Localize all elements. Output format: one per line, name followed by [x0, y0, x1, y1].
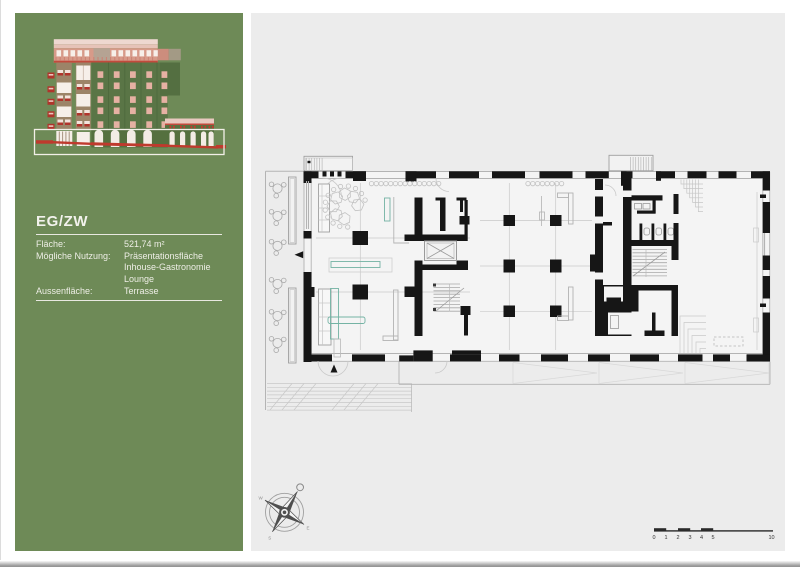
- svg-text:1: 1: [665, 535, 668, 541]
- svg-text:0: 0: [653, 535, 656, 541]
- svg-text:2: 2: [677, 535, 680, 541]
- svg-text:10: 10: [769, 535, 775, 541]
- svg-text:E: E: [307, 526, 310, 531]
- svg-text:W: W: [259, 496, 264, 501]
- svg-text:3: 3: [689, 535, 692, 541]
- svg-text:5: 5: [712, 535, 715, 541]
- svg-text:S: S: [268, 535, 271, 540]
- svg-text:4: 4: [700, 535, 703, 541]
